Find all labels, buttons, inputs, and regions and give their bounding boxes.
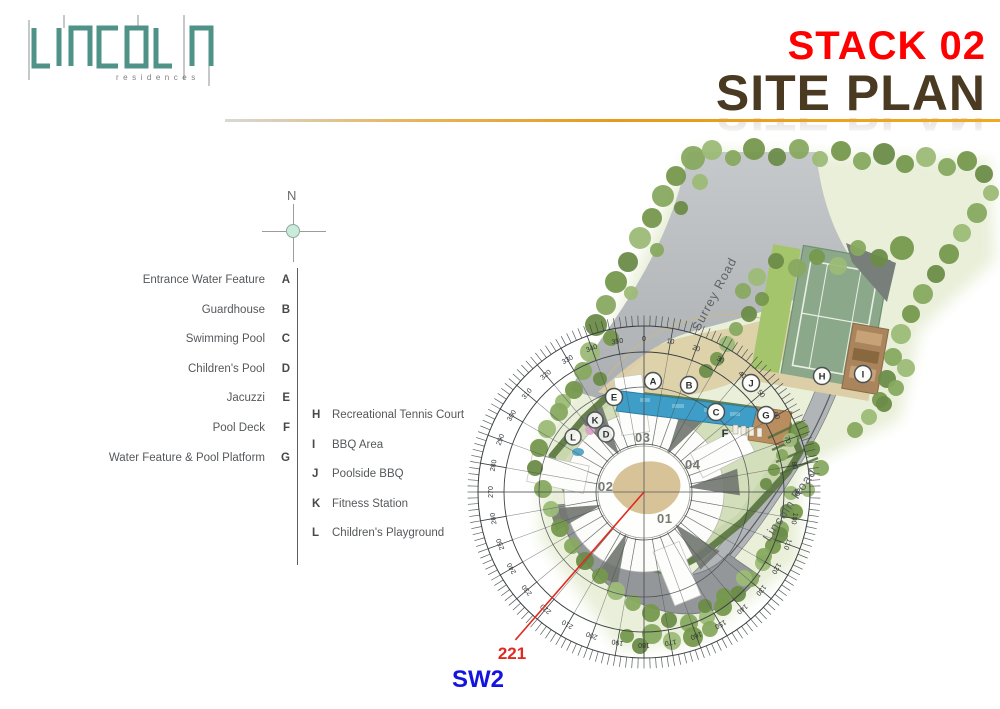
fine-tick xyxy=(469,467,479,468)
fine-tick xyxy=(775,594,783,600)
bearing-value: 221 xyxy=(498,644,526,663)
tree xyxy=(788,259,806,277)
tree xyxy=(939,244,959,264)
fine-tick xyxy=(763,607,771,614)
fine-tick xyxy=(632,658,633,668)
dial-degree-label: 80 xyxy=(790,461,798,470)
svg-text:G: G xyxy=(762,411,769,422)
tree xyxy=(592,568,608,584)
tree xyxy=(957,151,977,171)
tree xyxy=(755,292,769,306)
tree xyxy=(876,396,892,412)
marker-H: H xyxy=(814,368,831,385)
fine-tick xyxy=(469,515,479,516)
fine-tick xyxy=(556,339,561,348)
fine-tick xyxy=(810,504,820,505)
fine-tick xyxy=(545,346,551,355)
fine-tick xyxy=(505,594,513,600)
fine-tick xyxy=(695,650,698,660)
svg-text:I: I xyxy=(862,370,865,381)
svg-text:K: K xyxy=(592,416,599,427)
tree xyxy=(625,595,641,611)
tree xyxy=(652,185,674,207)
tree xyxy=(804,441,820,457)
fine-tick xyxy=(778,590,786,596)
dial-degree-label: 180 xyxy=(638,641,650,648)
dial-degree-label: 280 xyxy=(490,459,499,472)
stack-label-03: 03 xyxy=(635,430,650,445)
fine-tick xyxy=(717,641,722,650)
tree xyxy=(809,249,825,265)
marker-B: B xyxy=(681,377,698,394)
fine-tick xyxy=(480,554,490,558)
site-plan: 0102030405060708090100110120130140150160… xyxy=(0,0,1000,709)
fine-tick xyxy=(517,369,525,376)
fine-tick xyxy=(737,630,743,639)
tree xyxy=(743,138,765,160)
fine-tick xyxy=(722,639,727,648)
water-feature-pond xyxy=(572,448,584,456)
fine-tick xyxy=(474,443,484,446)
tree xyxy=(716,588,732,604)
fine-tick xyxy=(505,383,513,389)
tree xyxy=(730,586,746,602)
fine-tick xyxy=(491,404,500,409)
fine-tick xyxy=(480,426,490,430)
fine-tick xyxy=(483,420,493,424)
tree xyxy=(661,612,677,628)
fine-tick xyxy=(476,437,486,440)
svg-text:J: J xyxy=(748,379,753,390)
fine-tick xyxy=(501,388,509,394)
fine-tick xyxy=(526,361,533,369)
tree xyxy=(674,201,688,215)
tree xyxy=(596,295,616,315)
fine-tick xyxy=(589,650,592,660)
fine-tick xyxy=(771,599,779,606)
fine-tick xyxy=(478,432,488,436)
marker-G: G xyxy=(758,407,775,424)
tree xyxy=(642,208,662,228)
dial-degree-label: 10 xyxy=(666,338,675,346)
tree xyxy=(967,203,987,223)
fine-tick xyxy=(531,357,538,365)
fine-tick xyxy=(767,603,775,610)
tree xyxy=(873,143,895,165)
dial-degree-label: 230 xyxy=(521,583,534,597)
fine-tick xyxy=(732,633,738,642)
fine-tick xyxy=(468,480,478,481)
tree xyxy=(574,362,592,380)
fine-tick xyxy=(613,655,615,665)
svg-text:H: H xyxy=(819,372,826,383)
tree xyxy=(891,324,911,344)
fine-tick xyxy=(550,633,556,642)
fine-tick xyxy=(473,449,483,452)
fine-tick xyxy=(567,641,572,650)
dial-degree-label: 310 xyxy=(521,387,534,401)
fine-tick xyxy=(474,538,484,541)
fine-tick xyxy=(788,575,797,580)
tree xyxy=(847,422,863,438)
tree xyxy=(916,147,936,167)
fine-tick xyxy=(584,648,588,658)
svg-text:E: E xyxy=(611,393,617,404)
fine-tick xyxy=(485,415,494,420)
fine-tick xyxy=(494,398,503,404)
marker-C: C xyxy=(708,404,725,421)
fine-tick xyxy=(706,646,710,656)
tree xyxy=(870,249,888,267)
tree xyxy=(938,158,956,176)
fine-tick xyxy=(601,653,604,663)
stack-label-04: 04 xyxy=(685,457,701,472)
dial-degree-label: 260 xyxy=(490,512,499,525)
fine-tick xyxy=(470,461,480,463)
tree xyxy=(861,409,877,425)
tree xyxy=(983,185,999,201)
fine-tick xyxy=(656,658,657,668)
fine-tick xyxy=(513,603,521,610)
fine-tick xyxy=(679,654,681,664)
fine-tick xyxy=(521,365,528,373)
dial-degree-label: 240 xyxy=(506,561,518,575)
fine-tick xyxy=(572,331,576,341)
fine-tick xyxy=(805,532,815,535)
fine-tick xyxy=(802,543,812,546)
fine-tick xyxy=(746,623,752,631)
dial-degree-label: 270 xyxy=(488,486,495,498)
fine-tick xyxy=(468,474,478,475)
fine-tick xyxy=(488,570,497,575)
slide: residences STACK 02 SITE PLAN SITE PLAN … xyxy=(0,0,1000,709)
fine-tick xyxy=(498,585,507,591)
dial-degree-label: 300 xyxy=(506,409,518,423)
tree xyxy=(927,265,945,283)
fine-tick xyxy=(540,349,546,357)
fine-tick xyxy=(661,657,662,667)
fine-tick xyxy=(782,585,791,591)
fine-tick xyxy=(626,657,627,667)
fine-tick xyxy=(468,504,478,505)
tree xyxy=(725,150,741,166)
fine-tick xyxy=(498,393,507,399)
tree xyxy=(618,252,638,272)
fine-tick xyxy=(806,527,816,529)
fine-tick xyxy=(501,590,509,596)
marker-F: F xyxy=(722,428,729,440)
tree xyxy=(768,148,786,166)
fine-tick xyxy=(478,549,488,553)
tree xyxy=(760,478,772,490)
fine-tick xyxy=(521,611,528,619)
tree xyxy=(729,322,743,336)
dial-degree-label: 290 xyxy=(496,433,507,446)
dial-degree-label: 330 xyxy=(561,354,575,366)
fine-tick xyxy=(473,532,483,535)
tree xyxy=(975,165,993,183)
fine-tick xyxy=(673,655,675,665)
fine-tick xyxy=(712,644,716,654)
svg-text:D: D xyxy=(603,430,610,441)
fine-tick xyxy=(667,656,668,666)
marker-D: D xyxy=(598,426,614,442)
tree xyxy=(888,380,904,396)
fine-tick xyxy=(578,328,582,338)
stack-label-02: 02 xyxy=(598,479,613,494)
tree xyxy=(896,155,914,173)
fine-tick xyxy=(540,626,546,634)
tree xyxy=(768,253,784,269)
marker-A: A xyxy=(645,373,662,390)
fine-tick xyxy=(485,565,494,570)
tree xyxy=(897,359,915,377)
tree xyxy=(538,420,556,438)
fine-tick xyxy=(619,656,620,666)
fine-tick xyxy=(759,611,766,619)
tree xyxy=(666,166,686,186)
fine-tick xyxy=(545,630,551,639)
fine-tick xyxy=(793,565,802,570)
tree xyxy=(789,139,809,159)
fine-tick xyxy=(572,644,576,654)
dial-degree-label: 0 xyxy=(642,336,646,343)
tree xyxy=(692,174,708,190)
tree xyxy=(564,538,580,554)
tree xyxy=(741,306,757,322)
fine-tick xyxy=(513,374,521,381)
fine-tick xyxy=(471,455,481,457)
fine-tick xyxy=(470,521,480,523)
tree xyxy=(650,243,664,257)
fine-tick xyxy=(468,509,478,510)
fine-tick xyxy=(701,648,705,658)
dial-degree-label: 250 xyxy=(496,537,507,550)
svg-text:C: C xyxy=(713,408,720,419)
fine-tick xyxy=(690,652,693,662)
tree xyxy=(831,141,851,161)
tree xyxy=(550,403,568,421)
fine-tick xyxy=(800,549,810,553)
fine-tick xyxy=(804,538,814,541)
fine-tick xyxy=(494,580,503,586)
marker-K: K xyxy=(587,412,603,428)
fine-tick xyxy=(567,333,572,342)
fine-tick xyxy=(471,527,481,529)
fine-tick xyxy=(785,580,794,586)
marker-I: I xyxy=(855,366,872,383)
fine-tick xyxy=(595,652,598,662)
tree xyxy=(812,151,828,167)
fine-tick xyxy=(727,636,732,645)
fine-tick xyxy=(684,653,687,663)
fine-tick xyxy=(607,319,609,329)
fine-tick xyxy=(517,607,525,614)
fine-tick xyxy=(488,409,497,414)
dial-degree-label: 320 xyxy=(539,369,553,382)
fine-tick xyxy=(751,619,758,627)
fine-tick xyxy=(550,342,556,351)
fine-tick xyxy=(742,626,748,634)
svg-text:F: F xyxy=(722,428,729,440)
fine-tick xyxy=(509,599,517,606)
fine-tick xyxy=(535,623,541,631)
fine-tick xyxy=(561,639,566,648)
fine-tick xyxy=(491,575,500,580)
fine-tick xyxy=(509,379,517,386)
tree xyxy=(605,271,627,293)
tree xyxy=(551,519,569,537)
fine-tick xyxy=(607,654,609,664)
fine-tick xyxy=(809,509,819,510)
fine-tick xyxy=(755,615,762,623)
fine-tick xyxy=(808,515,818,516)
tree xyxy=(530,439,548,457)
fine-tick xyxy=(791,570,800,575)
tree xyxy=(853,152,871,170)
stack-label-01: 01 xyxy=(657,511,672,526)
dial-degree-label: 210 xyxy=(561,618,575,630)
svg-text:B: B xyxy=(686,381,693,392)
tree xyxy=(629,227,651,249)
tree xyxy=(681,146,705,170)
tree xyxy=(829,257,847,275)
marker-J: J xyxy=(743,375,760,392)
tree xyxy=(748,268,766,286)
tree xyxy=(735,283,751,299)
tree xyxy=(702,140,722,160)
tree xyxy=(534,480,552,498)
fine-tick xyxy=(556,636,561,645)
dial-degree-label: 200 xyxy=(585,630,598,641)
fine-tick xyxy=(561,336,566,345)
fine-tick xyxy=(535,353,541,361)
marker-E: E xyxy=(606,389,623,406)
tree xyxy=(953,224,971,242)
tree xyxy=(850,240,866,256)
tree xyxy=(642,604,660,622)
fine-tick xyxy=(807,521,817,523)
tree xyxy=(624,286,638,300)
svg-text:L: L xyxy=(570,433,576,444)
tree xyxy=(890,236,914,260)
tree xyxy=(543,501,559,517)
tree xyxy=(913,284,933,304)
fine-tick xyxy=(483,560,493,564)
marker-L: L xyxy=(565,429,581,445)
svg-text:A: A xyxy=(650,377,657,388)
tree xyxy=(902,305,920,323)
fine-tick xyxy=(476,543,486,546)
fine-tick xyxy=(578,646,582,656)
direction-label: SW2 xyxy=(452,666,504,693)
